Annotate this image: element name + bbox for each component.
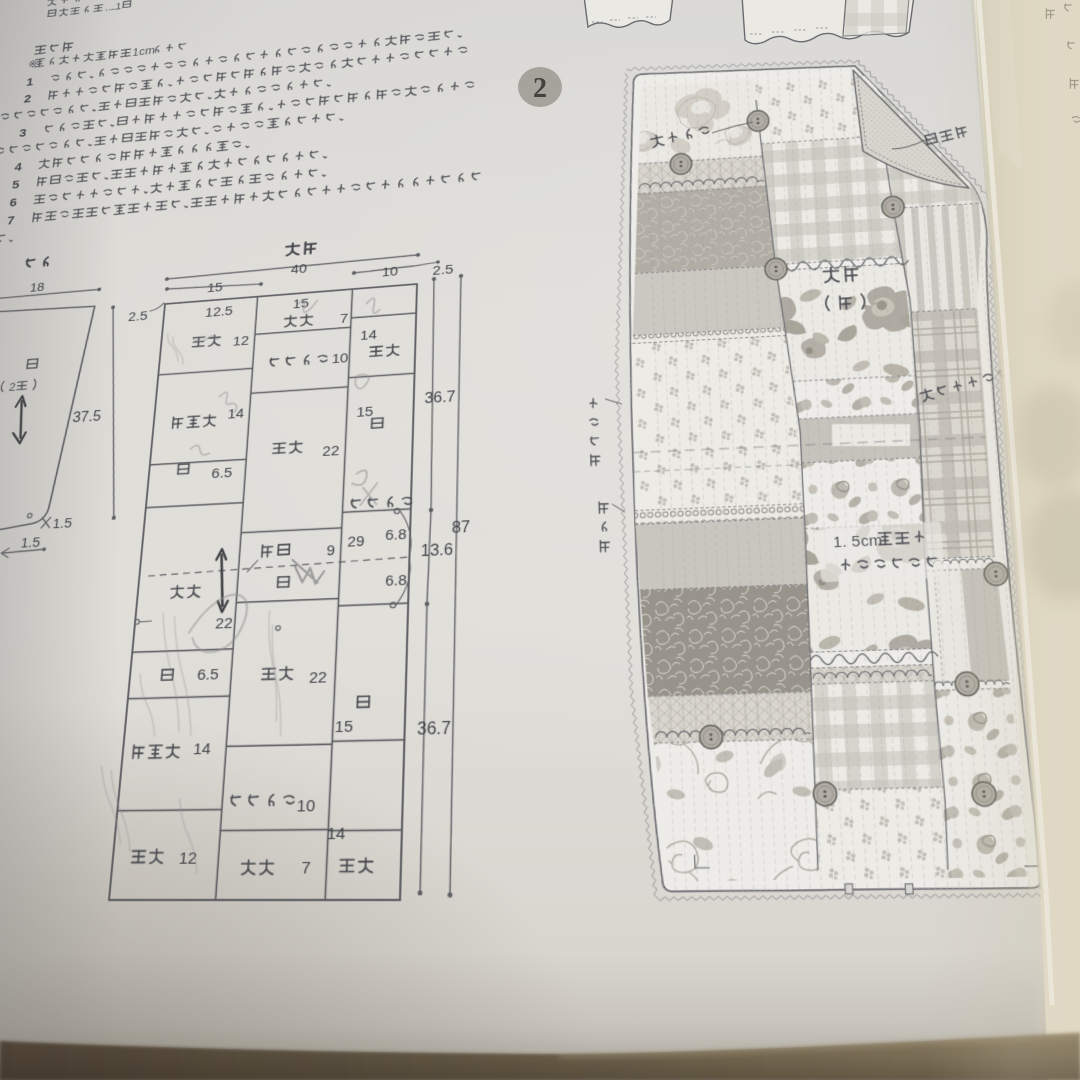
svg-text:7: 7 bbox=[301, 859, 311, 878]
svg-text:6.8: 6.8 bbox=[385, 527, 407, 544]
svg-text:36.7: 36.7 bbox=[424, 388, 456, 408]
svg-text:7: 7 bbox=[6, 215, 15, 228]
svg-text:13.6: 13.6 bbox=[421, 540, 454, 560]
svg-text:6.5: 6.5 bbox=[196, 667, 219, 684]
svg-text:5: 5 bbox=[11, 179, 21, 192]
svg-text:2.5: 2.5 bbox=[127, 310, 148, 325]
svg-text:29: 29 bbox=[347, 534, 365, 551]
svg-text:7: 7 bbox=[339, 312, 348, 327]
svg-text:10: 10 bbox=[382, 265, 399, 280]
svg-text:9: 9 bbox=[326, 543, 335, 559]
svg-text:m: m bbox=[868, 530, 882, 549]
svg-text:6.5: 6.5 bbox=[211, 465, 233, 481]
svg-text:14: 14 bbox=[326, 825, 346, 844]
svg-text:1: 1 bbox=[26, 76, 35, 89]
svg-text:1.5: 1.5 bbox=[52, 516, 73, 532]
svg-text:87: 87 bbox=[452, 517, 471, 537]
svg-text:14: 14 bbox=[360, 328, 378, 344]
svg-text:2: 2 bbox=[23, 93, 32, 106]
svg-text:1: 1 bbox=[115, 1, 122, 12]
svg-text:6.8: 6.8 bbox=[385, 573, 407, 590]
svg-text:※: ※ bbox=[27, 59, 38, 71]
svg-text:12: 12 bbox=[232, 334, 249, 349]
svg-text:15: 15 bbox=[356, 404, 374, 420]
svg-text:37.5: 37.5 bbox=[72, 407, 103, 426]
svg-text:6: 6 bbox=[9, 197, 18, 210]
svg-text:m: m bbox=[144, 46, 155, 58]
svg-text:2: 2 bbox=[8, 381, 17, 394]
svg-text:15: 15 bbox=[334, 719, 353, 737]
svg-text:10: 10 bbox=[331, 351, 348, 367]
svg-text:14: 14 bbox=[192, 741, 212, 759]
svg-text:1.5: 1.5 bbox=[20, 535, 41, 551]
svg-text:22: 22 bbox=[215, 616, 233, 633]
svg-text:18: 18 bbox=[29, 281, 45, 296]
svg-text:15: 15 bbox=[292, 297, 309, 312]
svg-text:15: 15 bbox=[206, 281, 223, 296]
svg-text:12.5: 12.5 bbox=[205, 304, 234, 320]
svg-text:22: 22 bbox=[309, 670, 328, 688]
svg-text:40: 40 bbox=[291, 262, 308, 277]
svg-text:22: 22 bbox=[322, 443, 340, 459]
svg-text:2.5: 2.5 bbox=[432, 262, 453, 278]
svg-text:10: 10 bbox=[296, 798, 315, 816]
svg-text:3: 3 bbox=[18, 127, 27, 140]
svg-text:36.7: 36.7 bbox=[417, 718, 451, 739]
svg-text:4: 4 bbox=[14, 161, 24, 174]
